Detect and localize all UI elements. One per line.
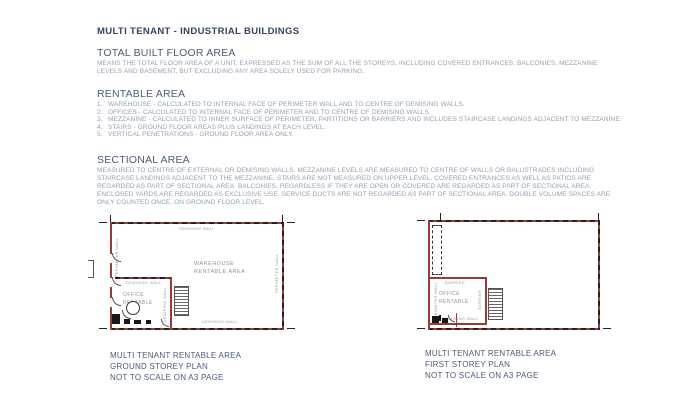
list-item: 3. MEZZANINE - CALCULATED TO INNER SURFA… <box>97 116 622 124</box>
list-item-number: 3. <box>97 116 108 124</box>
ground-plan-bottom-wall <box>110 328 284 330</box>
barrier-label-right: BARRIER <box>477 290 482 310</box>
dimension-tick <box>287 328 295 329</box>
first-plan-bottom-wall <box>428 328 600 330</box>
dimension-tick <box>440 213 441 220</box>
office-top-wall <box>115 277 172 279</box>
list-item-number: 5. <box>97 131 108 139</box>
ground-storey-plan: DEMISING WALL DEMISING WALL PERIMETER WA… <box>110 222 284 330</box>
office-right-barrier-wall <box>485 277 487 325</box>
office-demising-wall-label-right: DEMISING WALL <box>162 287 167 323</box>
first-plan-caption: MULTI TENANT RENTABLE AREA FIRST STOREY … <box>425 348 556 381</box>
dimension-tick <box>287 222 295 223</box>
toilet-fixture <box>146 320 151 324</box>
page-title: MULTI TENANT - INDUSTRIAL BUILDINGS <box>97 26 299 37</box>
dimension-bracket <box>88 260 94 278</box>
first-plan-top-wall <box>428 220 600 222</box>
list-item-number: 4. <box>97 124 108 132</box>
section-heading-total-built: TOTAL BUILT FLOOR AREA <box>97 47 236 59</box>
toilet-fixture <box>112 314 120 324</box>
ground-plan-top-wall <box>110 222 284 224</box>
demising-wall-label-top: DEMISING WALL <box>110 226 284 231</box>
barrier-label-top: BARRIER <box>445 280 465 285</box>
office-rentable-label: OFFICE RENTABLE <box>439 291 469 306</box>
dimension-tick <box>99 328 107 329</box>
void-dashed-outline <box>432 225 442 275</box>
door-swing-arc <box>448 315 455 322</box>
list-item-text: OFFICES - CALCULATED TO INTERNAL FACE OF… <box>108 109 431 117</box>
staircase <box>174 286 189 316</box>
ground-plan-right-wall <box>282 222 284 330</box>
list-item: 2. OFFICES - CALCULATED TO INTERNAL FACE… <box>97 109 622 117</box>
dimension-tick <box>603 328 611 329</box>
office-right-wall <box>170 277 172 328</box>
first-storey-plan: BARRIER OFFICE RENTABLE BARRIER DEMISING… <box>428 220 600 330</box>
section-heading-sectional: SECTIONAL AREA <box>97 154 190 166</box>
toilet-fixture <box>124 319 130 324</box>
dimension-tick <box>99 222 107 223</box>
toilet-room <box>430 313 457 327</box>
list-item-number: 1. <box>97 101 108 109</box>
list-item-text: VERTICAL PENETRATIONS - GROUND FLOOR ARE… <box>108 131 294 139</box>
perimeter-wall-label-left: PERIMETER WALL <box>114 238 119 277</box>
office-demising-wall-label: DEMISING WALL <box>126 280 162 285</box>
demising-wall-label-bottom: DEMISING WALL <box>202 319 238 324</box>
dimension-tick <box>282 215 283 222</box>
list-item-text: WAREHOUSE - CALCULATED TO INTERNAL FACE … <box>108 101 465 109</box>
list-item: 4. STAIRS - GROUND FLOOR AREAS PLUS LAND… <box>97 124 622 132</box>
list-item-text: MEZZANINE - CALCULATED TO INNER SURFACE … <box>108 116 622 124</box>
list-item: 1. WAREHOUSE - CALCULATED TO INTERNAL FA… <box>97 101 622 109</box>
dimension-tick <box>598 213 599 220</box>
list-item-text: STAIRS - GROUND FLOOR AREAS PLUS LANDING… <box>108 124 326 132</box>
toilet-fixture <box>442 318 448 323</box>
rentable-list: 1. WAREHOUSE - CALCULATED TO INTERNAL FA… <box>97 101 622 139</box>
toilet-fixture <box>134 320 141 324</box>
section-body-sectional: MEASURED TO CENTRE OF EXTERNAL OR DEMISI… <box>97 167 621 207</box>
section-heading-rentable: RENTABLE AREA <box>97 88 185 100</box>
staircase <box>488 288 503 320</box>
ground-plan-caption: MULTI TENANT RENTABLE AREA GROUND STOREY… <box>110 350 241 383</box>
page: { "page": { "title": "MULTI TENANT - IND… <box>0 0 700 418</box>
office-top-barrier-wall <box>430 277 487 279</box>
dimension-tick <box>417 328 425 329</box>
warehouse-rentable-area-label: WAREHOUSE RENTABLE AREA <box>194 260 245 277</box>
section-body-total-built: MEANS THE TOTAL FLOOR AREA OF A UNIT, EX… <box>97 60 617 76</box>
list-item-number: 2. <box>97 109 108 117</box>
toilet-fixture <box>432 316 439 323</box>
dimension-tick <box>110 215 111 222</box>
dimension-tick <box>417 220 425 221</box>
perimeter-wall-label-right: PERIMETER WALL <box>274 254 279 293</box>
list-item: 5. VERTICAL PENETRATIONS - GROUND FLOOR … <box>97 131 622 139</box>
first-plan-right-wall <box>598 220 600 330</box>
door-swing-arc <box>161 319 169 327</box>
